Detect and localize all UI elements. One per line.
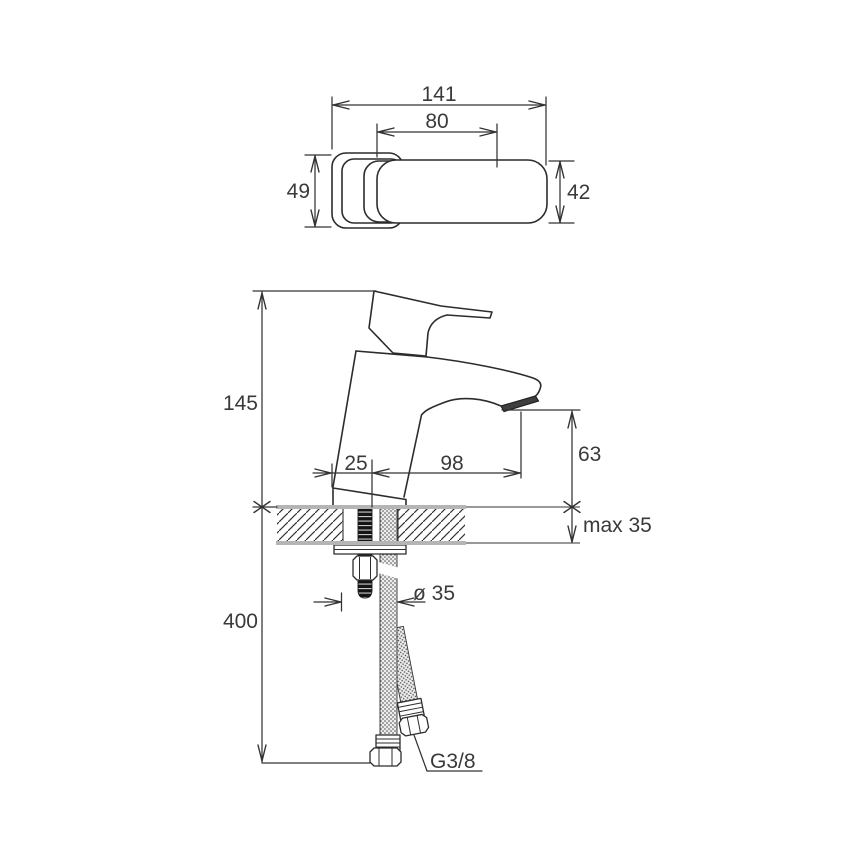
faucet-spout-underside bbox=[404, 399, 501, 497]
label-top-width: 141 bbox=[421, 83, 456, 106]
top-view bbox=[332, 153, 547, 228]
label-hole-diameter: ø 35 bbox=[413, 582, 455, 605]
top-view-handle-lever bbox=[377, 160, 547, 223]
label-top-depth-right: 42 bbox=[567, 181, 590, 204]
label-deck-thickness: max 35 bbox=[583, 514, 652, 537]
faucet-dimension-drawing: 141 80 49 42 bbox=[0, 0, 868, 868]
label-top-handle: 80 bbox=[425, 110, 448, 133]
technical-drawing-canvas: 141 80 49 42 bbox=[0, 0, 868, 868]
label-height-above-deck: 145 bbox=[223, 392, 258, 415]
mounting-nut bbox=[353, 556, 377, 580]
hose-nut-straight bbox=[370, 748, 401, 766]
dim-hose-thread: G3/8 bbox=[414, 735, 482, 773]
label-hose-drop: 400 bbox=[223, 610, 258, 633]
dim-top-depth-right-42: 42 bbox=[549, 161, 590, 223]
dim-spout-height-deck: 63 max 35 bbox=[466, 410, 652, 543]
under-counter-assembly bbox=[334, 507, 429, 766]
label-hose-thread: G3/8 bbox=[430, 750, 476, 773]
label-spout-reach: 98 bbox=[440, 452, 463, 475]
faucet-aerator bbox=[501, 396, 539, 412]
faucet-base-flange bbox=[333, 488, 406, 506]
label-spout-height: 63 bbox=[578, 443, 601, 466]
faucet-spout-top bbox=[427, 357, 541, 396]
label-base-offset: 25 bbox=[344, 452, 367, 475]
deck-hatch-right bbox=[398, 509, 465, 541]
dim-top-depth-left-49: 49 bbox=[287, 155, 331, 227]
deck-hatch-left bbox=[277, 509, 343, 541]
label-top-depth-left: 49 bbox=[287, 180, 310, 203]
faucet-handle bbox=[369, 291, 492, 356]
